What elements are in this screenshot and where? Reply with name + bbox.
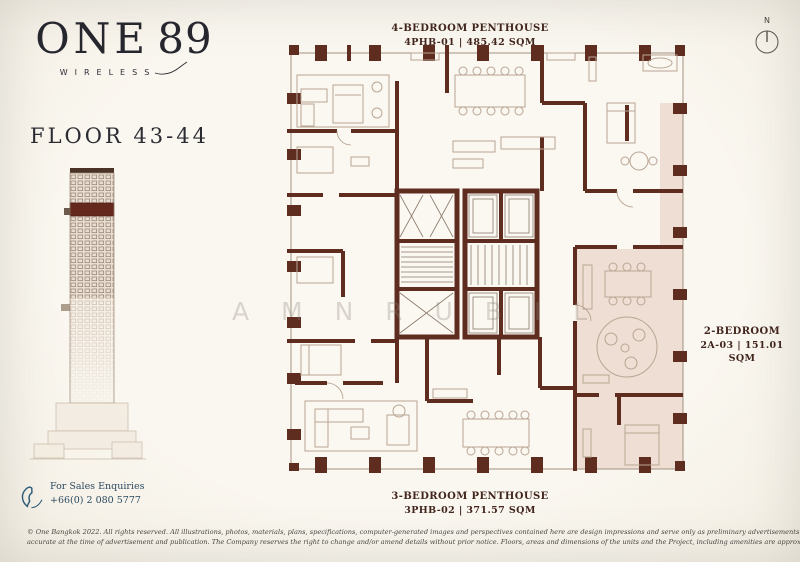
unit-label-2a03: 2-BEDROOM 2A-03 | 151.01 SQM <box>688 325 796 366</box>
logo-flourish-line <box>154 61 188 81</box>
brand-logo-number: 89 <box>157 14 212 63</box>
compass-north-label: N <box>750 17 784 25</box>
brand-logo: ONE 89 WIRELESS <box>34 18 214 81</box>
highlighted-floor-band <box>70 203 114 216</box>
unit-name: 2-BEDROOM <box>688 325 796 339</box>
sales-contact: For Sales Enquiries +66(0) 2 080 5777 <box>18 480 218 508</box>
contact-heading: For Sales Enquiries <box>50 480 218 494</box>
brand-logo-subtitle: WIRELESS <box>60 68 157 77</box>
disclaimer-line-1: © One Bangkok 2022. All rights reserved.… <box>27 527 775 537</box>
unit-name: 3-BEDROOM PENTHOUSE <box>350 490 590 504</box>
disclaimer-line-2: accurate at the time of advertisement an… <box>27 537 775 547</box>
floor-title: FLOOR 43-44 <box>30 124 209 148</box>
brand-logo-wordmark: ONE 89 <box>34 18 214 60</box>
unit-code: 3PHB-02 | 371.57 SQM <box>350 504 590 517</box>
phone-icon <box>18 482 46 510</box>
contact-phone-number[interactable]: +66(0) 2 080 5777 <box>50 494 218 508</box>
compass-icon: N <box>750 17 784 61</box>
building-rendering <box>28 156 148 472</box>
floor-plan <box>287 45 693 482</box>
legal-disclaimer: © One Bangkok 2022. All rights reserved.… <box>27 527 775 547</box>
unit-label-3phb: 3-BEDROOM PENTHOUSE 3PHB-02 | 371.57 SQM <box>350 490 590 517</box>
elevator-core <box>397 191 537 337</box>
brand-logo-one: ONE <box>35 14 149 63</box>
brochure-page: ONE 89 WIRELESS FLOOR 43-44 <box>0 0 800 562</box>
unit-name: 4-BEDROOM PENTHOUSE <box>350 22 590 36</box>
unit-code: 2A-03 | 151.01 SQM <box>688 339 796 366</box>
